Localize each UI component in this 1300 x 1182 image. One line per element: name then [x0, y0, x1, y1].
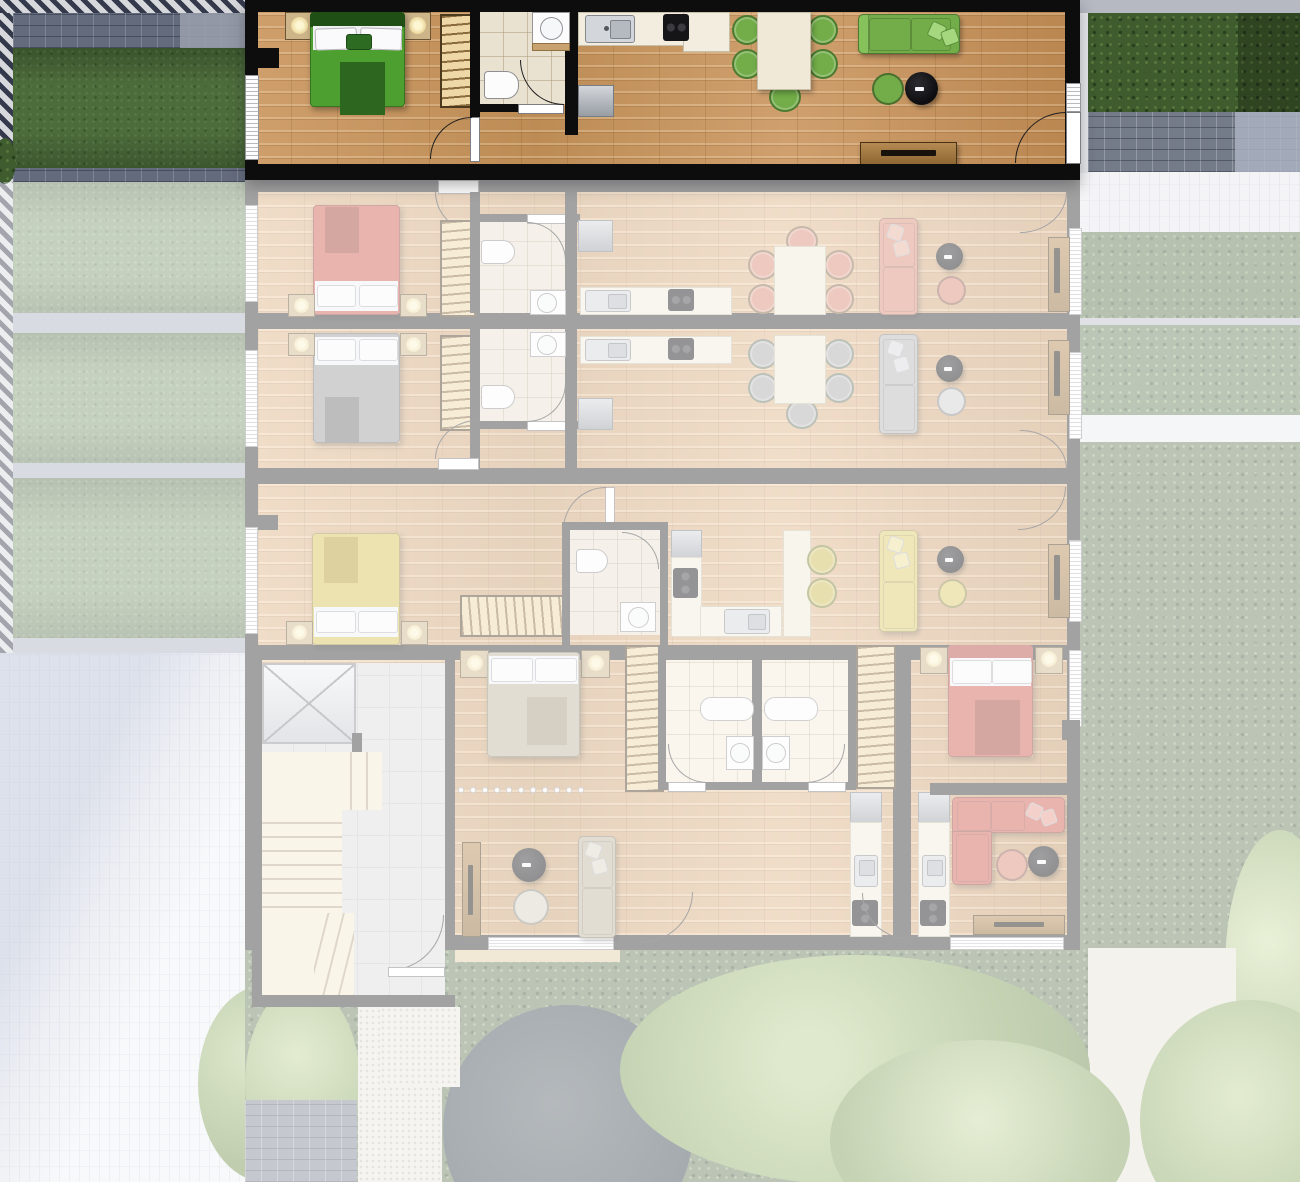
nightstand — [581, 650, 610, 678]
bed-red — [313, 205, 400, 315]
coffee-table — [937, 546, 964, 573]
bath-door-leaf[interactable] — [668, 782, 706, 792]
bed-yellow — [312, 533, 400, 645]
unit-4[interactable] — [258, 484, 1067, 645]
dining-table — [757, 12, 811, 90]
sofa-green — [858, 14, 960, 54]
entry-door-leaf[interactable] — [438, 458, 479, 470]
wall-bath-left — [562, 530, 570, 645]
paver-strip — [13, 313, 245, 333]
wall-stub-left — [257, 48, 279, 68]
unit-1-highlighted[interactable] — [245, 0, 1080, 180]
cooktop — [668, 289, 694, 311]
kitchen-sink — [922, 855, 946, 887]
toilet — [481, 240, 515, 264]
nightstand — [286, 621, 313, 645]
bed-gray — [313, 333, 400, 443]
living-door-arc — [1020, 430, 1067, 469]
sofa-beige — [578, 836, 616, 938]
unit-3[interactable] — [258, 329, 1067, 468]
cooktop — [920, 900, 946, 926]
wall-bedroom-bath — [470, 12, 480, 117]
terrace-strip — [455, 948, 620, 962]
fridge — [578, 398, 613, 430]
wall-divider-1 — [245, 313, 1080, 329]
wall-bath-right — [848, 645, 856, 790]
wall-bath-right — [565, 329, 577, 468]
fridge — [918, 792, 950, 824]
entry-gravel-pad — [380, 1007, 460, 1087]
nightstand — [401, 621, 428, 645]
kitchen-sink — [724, 609, 770, 634]
corner-sofa-red-leg — [952, 831, 992, 885]
core-wall-left — [252, 655, 262, 1007]
hedge-right-faded-2 — [1080, 325, 1300, 415]
dining-chair — [824, 373, 854, 403]
unit-2[interactable] — [258, 192, 1067, 313]
paver-bottom-left — [245, 1100, 357, 1182]
toilet — [481, 385, 515, 409]
sofa-yellow — [879, 530, 918, 632]
pouf-beige — [513, 889, 549, 925]
nightstand — [288, 294, 315, 317]
washbasin — [726, 736, 754, 770]
path-right-white — [1080, 415, 1300, 442]
bath-door-leaf[interactable] — [808, 782, 846, 792]
wardrobe — [856, 645, 896, 789]
dining-chair — [808, 49, 838, 79]
tv-sideboard — [462, 842, 481, 937]
entrance-door-leaf[interactable] — [388, 967, 445, 977]
dining-chair — [808, 15, 838, 45]
staircase-flight-up[interactable] — [262, 810, 342, 910]
window-bottom-1 — [488, 937, 614, 950]
pouf-gray — [937, 387, 966, 416]
dining-chair — [824, 250, 854, 280]
nightstand — [920, 647, 948, 674]
dining-table — [774, 246, 826, 315]
living-door-leaf[interactable] — [1066, 112, 1081, 164]
left-facade-window — [245, 75, 259, 160]
sofa-red — [879, 218, 918, 315]
kitchen-sink — [585, 339, 631, 361]
tv-sideboard — [1048, 237, 1070, 312]
coffee-table — [1028, 846, 1059, 877]
tv-sideboard — [860, 142, 957, 165]
wall-bath-right — [660, 522, 668, 645]
washbasin — [620, 602, 656, 632]
window-left-f3 — [245, 350, 258, 447]
nightstand-right — [403, 12, 431, 40]
paver-strip — [13, 638, 245, 653]
fridge — [671, 530, 702, 559]
sofa-gray — [879, 334, 918, 434]
bathtub — [764, 697, 818, 721]
floor-plan-canvas — [0, 0, 1300, 1182]
unit-6[interactable] — [856, 645, 1080, 950]
garden-strip-2 — [13, 182, 245, 313]
window-right-f3 — [1069, 352, 1082, 439]
window-left-f2 — [245, 205, 258, 302]
staircase-flight-lower[interactable] — [314, 913, 354, 995]
window-right-f2 — [1069, 228, 1082, 315]
wall-top-floor2 — [245, 180, 1080, 192]
pouf-green — [872, 73, 904, 105]
paver-strip — [13, 463, 245, 478]
path-right-faded — [1080, 172, 1300, 232]
pouf-red — [996, 849, 1028, 881]
fridge — [578, 85, 614, 117]
pouf-yellow — [938, 579, 967, 608]
coffee-table — [936, 243, 963, 270]
core-entry-wall — [252, 995, 455, 1007]
wall-stub — [1062, 720, 1080, 740]
garden-strip-4 — [13, 478, 245, 638]
nightstand-left — [285, 12, 313, 40]
dining-chair — [824, 339, 854, 369]
kitchen-sink — [585, 290, 631, 312]
dining-chair — [824, 284, 854, 314]
nightstand — [460, 650, 489, 678]
washbasin — [530, 332, 566, 357]
kitchen-counter-step — [683, 12, 730, 52]
dining-chair — [807, 545, 837, 575]
living-door-arc — [1020, 192, 1067, 233]
wall-bed-bath — [470, 192, 480, 313]
nightstand — [400, 333, 427, 356]
deco-pebble-row — [455, 785, 585, 797]
elevator[interactable] — [262, 663, 356, 744]
fridge — [578, 220, 613, 252]
wall-divider-2 — [245, 468, 1080, 484]
wall-top — [245, 0, 1080, 12]
toilet — [576, 549, 608, 573]
tv-sideboard — [1048, 340, 1070, 415]
bathtub — [700, 697, 754, 721]
coffee-table-black — [905, 72, 938, 105]
wall-bath-right — [565, 192, 577, 313]
stair-core — [252, 655, 455, 1007]
unit-5[interactable] — [455, 660, 895, 935]
wall-bath-left — [658, 645, 666, 790]
bathroom-door-leaf[interactable] — [518, 104, 564, 114]
vanity-shelf — [532, 43, 570, 51]
stair-winders — [322, 752, 382, 810]
nightstand — [400, 294, 427, 317]
pouf-red — [937, 276, 966, 305]
cooktop — [668, 338, 694, 360]
kitchen-island — [783, 530, 811, 637]
bath-door-leaf[interactable] — [527, 421, 567, 431]
living-door-arc — [1018, 487, 1066, 530]
kitchen-sink — [585, 15, 635, 43]
dining-table — [774, 335, 826, 404]
wall-bath-bottom — [480, 104, 518, 112]
washbasin-vanity — [532, 12, 570, 44]
cooktop — [663, 14, 689, 41]
bed-red — [948, 645, 1033, 757]
cooktop — [673, 568, 698, 598]
terrace-door-arc — [862, 893, 908, 939]
core-wall-right — [445, 655, 455, 950]
tv-sideboard — [973, 915, 1065, 935]
wardrobe — [460, 595, 569, 637]
garden-strip-3 — [13, 333, 245, 463]
wall-bottom — [245, 164, 1080, 180]
washbasin — [762, 736, 790, 770]
window-left-f4 — [245, 527, 258, 634]
nightstand — [288, 333, 315, 356]
tv-sideboard — [1048, 544, 1070, 618]
bed-beige — [487, 652, 580, 757]
coffee-table — [936, 355, 963, 382]
hedge-right-faded-1 — [1080, 232, 1300, 318]
toilet — [484, 71, 519, 99]
wall-stub — [258, 515, 278, 530]
coffee-table — [512, 848, 546, 882]
double-bed-green — [310, 12, 405, 107]
corner-sofa-red — [952, 797, 1065, 833]
wall-bath-top — [562, 522, 668, 530]
window-right-f4 — [1069, 540, 1082, 622]
wall-bed-living — [930, 783, 1080, 795]
washbasin — [530, 290, 566, 315]
curb-right — [1080, 318, 1300, 325]
nightstand — [1035, 647, 1063, 674]
right-facade-window — [1066, 83, 1081, 112]
dining-chair — [807, 578, 837, 608]
